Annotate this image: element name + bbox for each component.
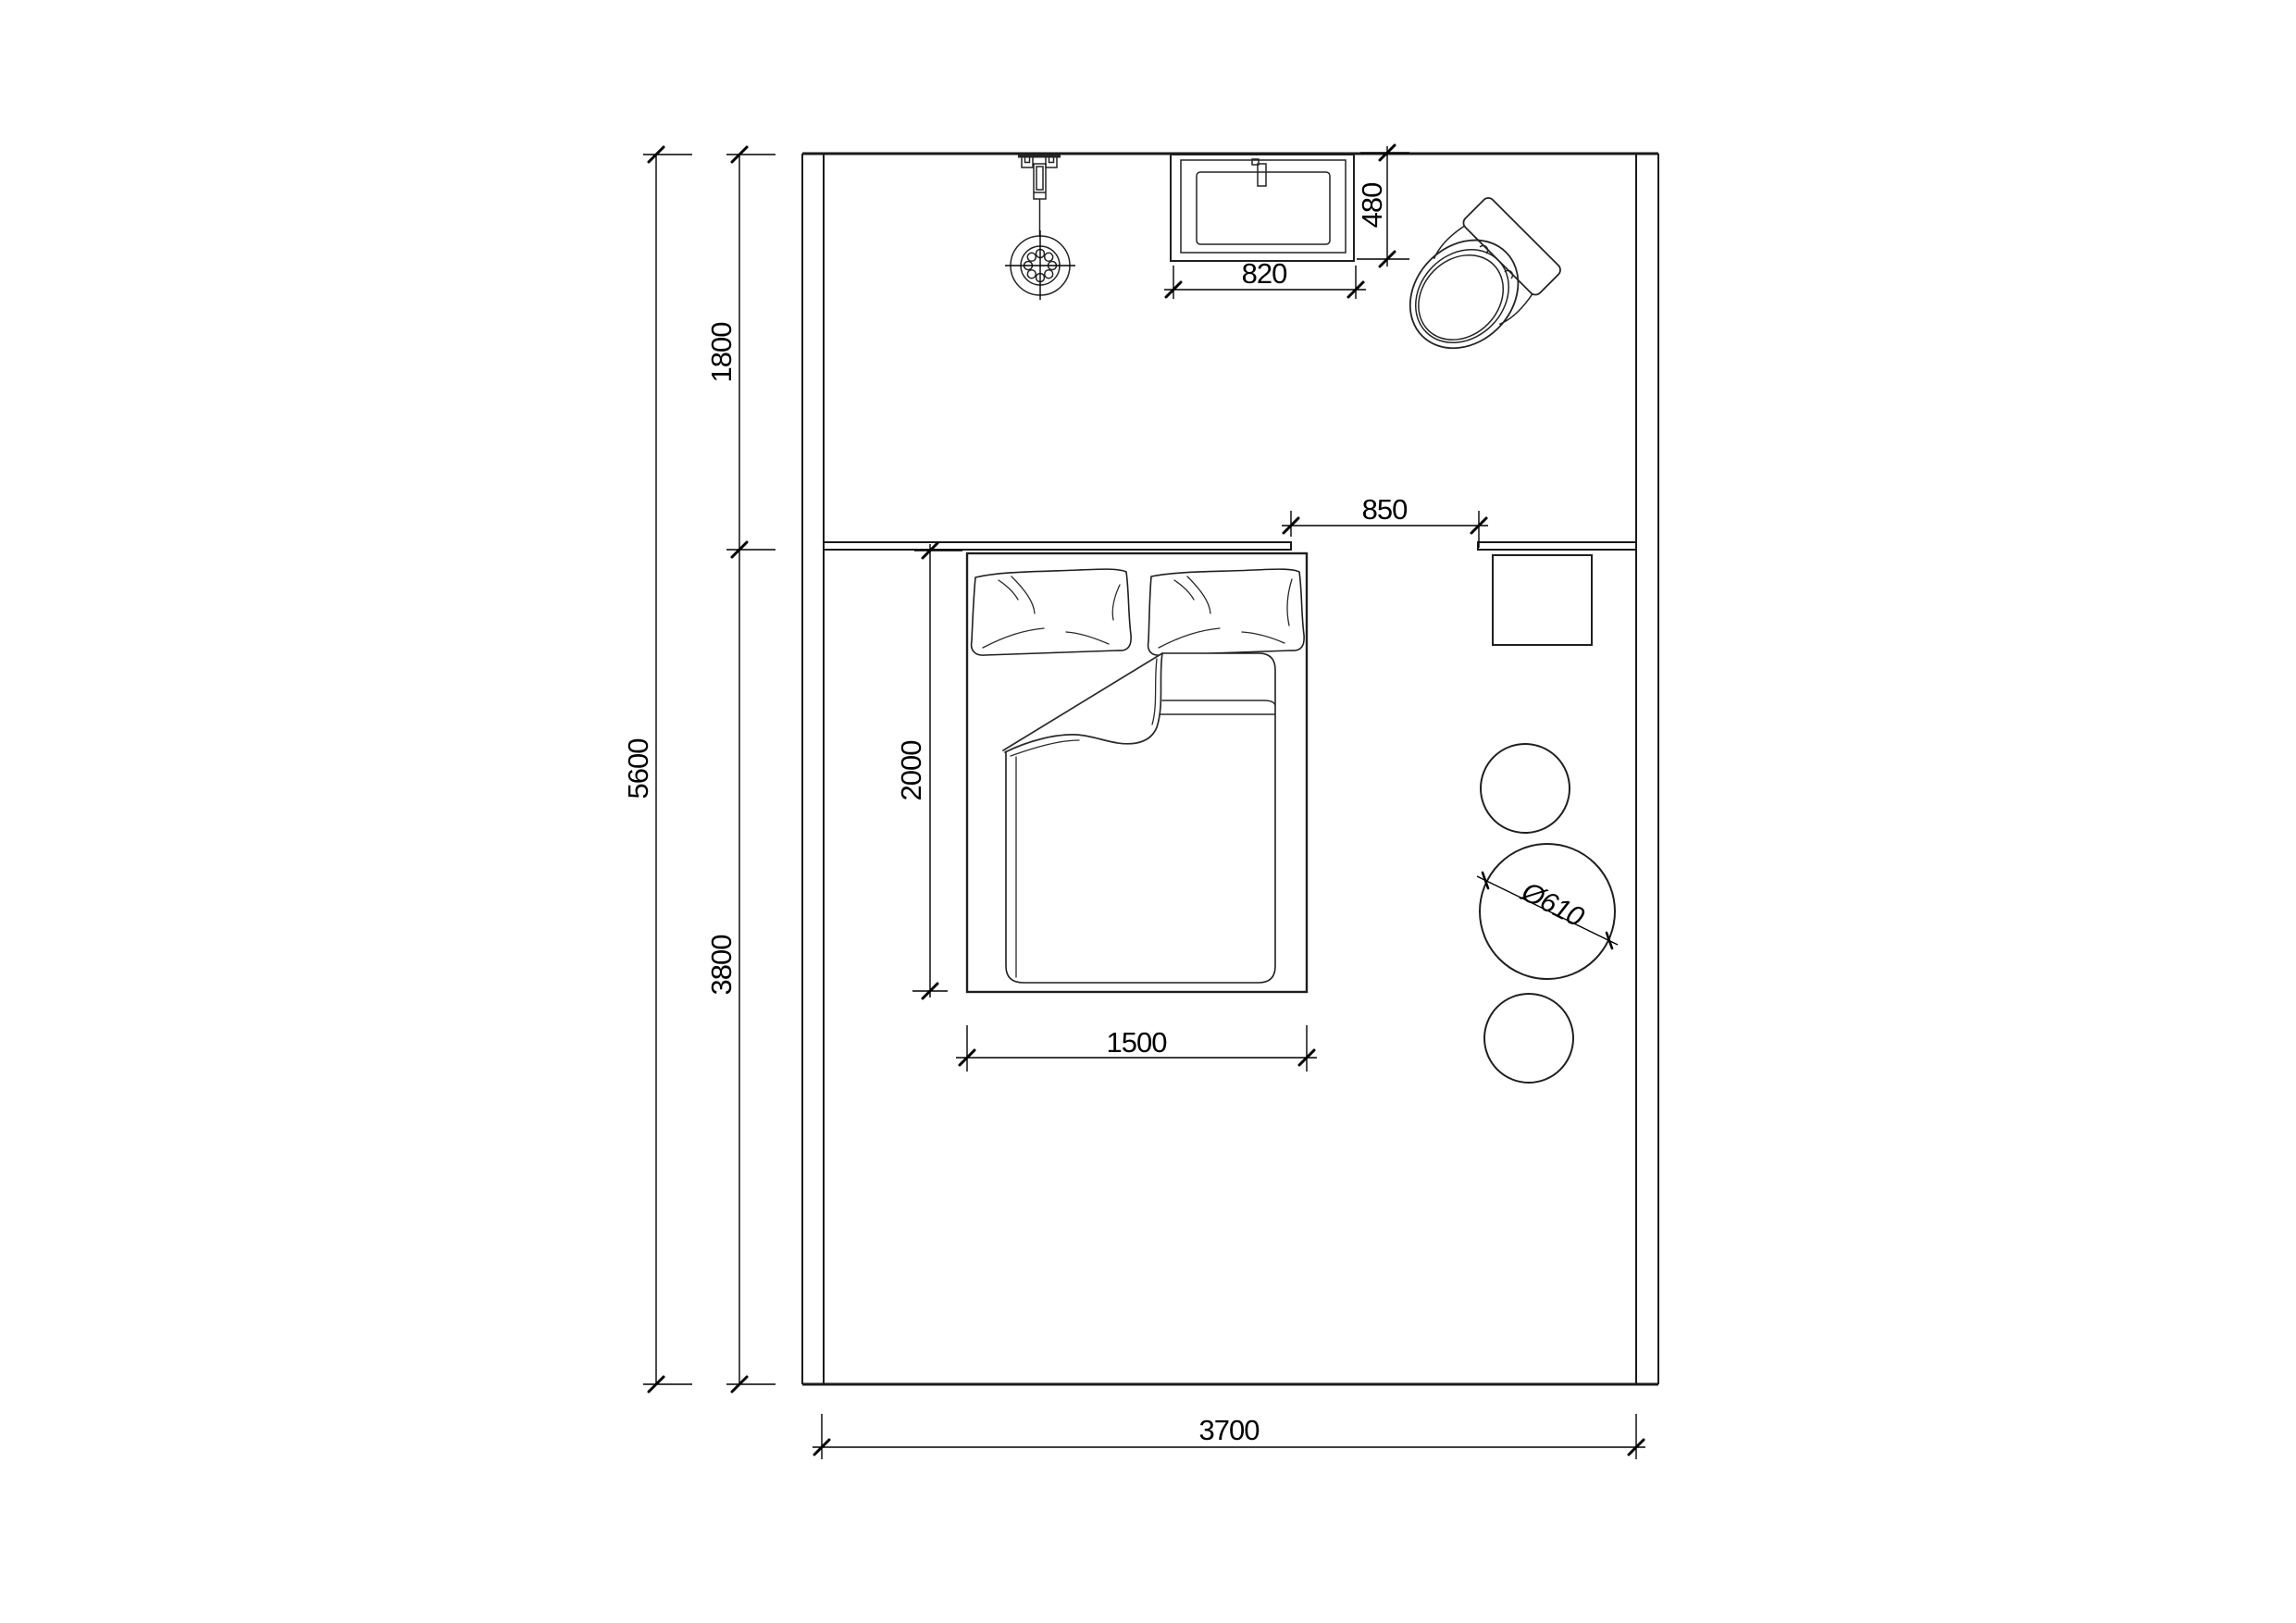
dim-bed-width: 1500 — [956, 1025, 1317, 1072]
dim-bed-length: 2000 — [895, 543, 962, 998]
stool-top — [1481, 744, 1570, 833]
dim-basin-depth: 480 — [1356, 145, 1409, 266]
stool-bottom — [1484, 994, 1573, 1083]
shower-head-icon — [1005, 230, 1075, 300]
dim-overall-height: 5600 — [622, 147, 692, 1392]
dim-basin-width: 820 — [1164, 257, 1366, 299]
dim-overall-width: 3700 — [813, 1414, 1645, 1459]
wash-basin — [1171, 155, 1354, 261]
dim-bed-length-label: 2000 — [895, 740, 927, 801]
nightstand — [1493, 555, 1592, 645]
dim-clearance-label: 850 — [1362, 493, 1408, 526]
dim-overall-height-label: 5600 — [622, 738, 654, 799]
floor-plan-canvas: Ø610 5600 1800 3800 3700 820 — [0, 0, 2296, 1623]
toilet — [1385, 195, 1563, 373]
dim-bed-width-label: 1500 — [1107, 1026, 1168, 1059]
dim-top-section-label: 1800 — [705, 322, 738, 383]
dim-basin-width-label: 820 — [1242, 257, 1287, 290]
dim-overall-width-label: 3700 — [1199, 1414, 1260, 1446]
dim-clearance: 850 — [1282, 493, 1488, 548]
wall-shelf — [1478, 542, 1636, 550]
shower-wall-bracket — [1018, 156, 1061, 168]
dim-sections: 1800 3800 — [705, 147, 776, 1392]
headboard-panel — [824, 542, 1291, 550]
shower-fixture — [1005, 156, 1075, 301]
dim-basin-depth-label: 480 — [1356, 182, 1388, 228]
shower-slide-rail — [1034, 164, 1046, 199]
pillow-right — [1148, 569, 1305, 655]
double-bed — [967, 553, 1307, 992]
dim-bottom-section-label: 3800 — [705, 935, 738, 996]
pillow-left — [972, 569, 1132, 655]
